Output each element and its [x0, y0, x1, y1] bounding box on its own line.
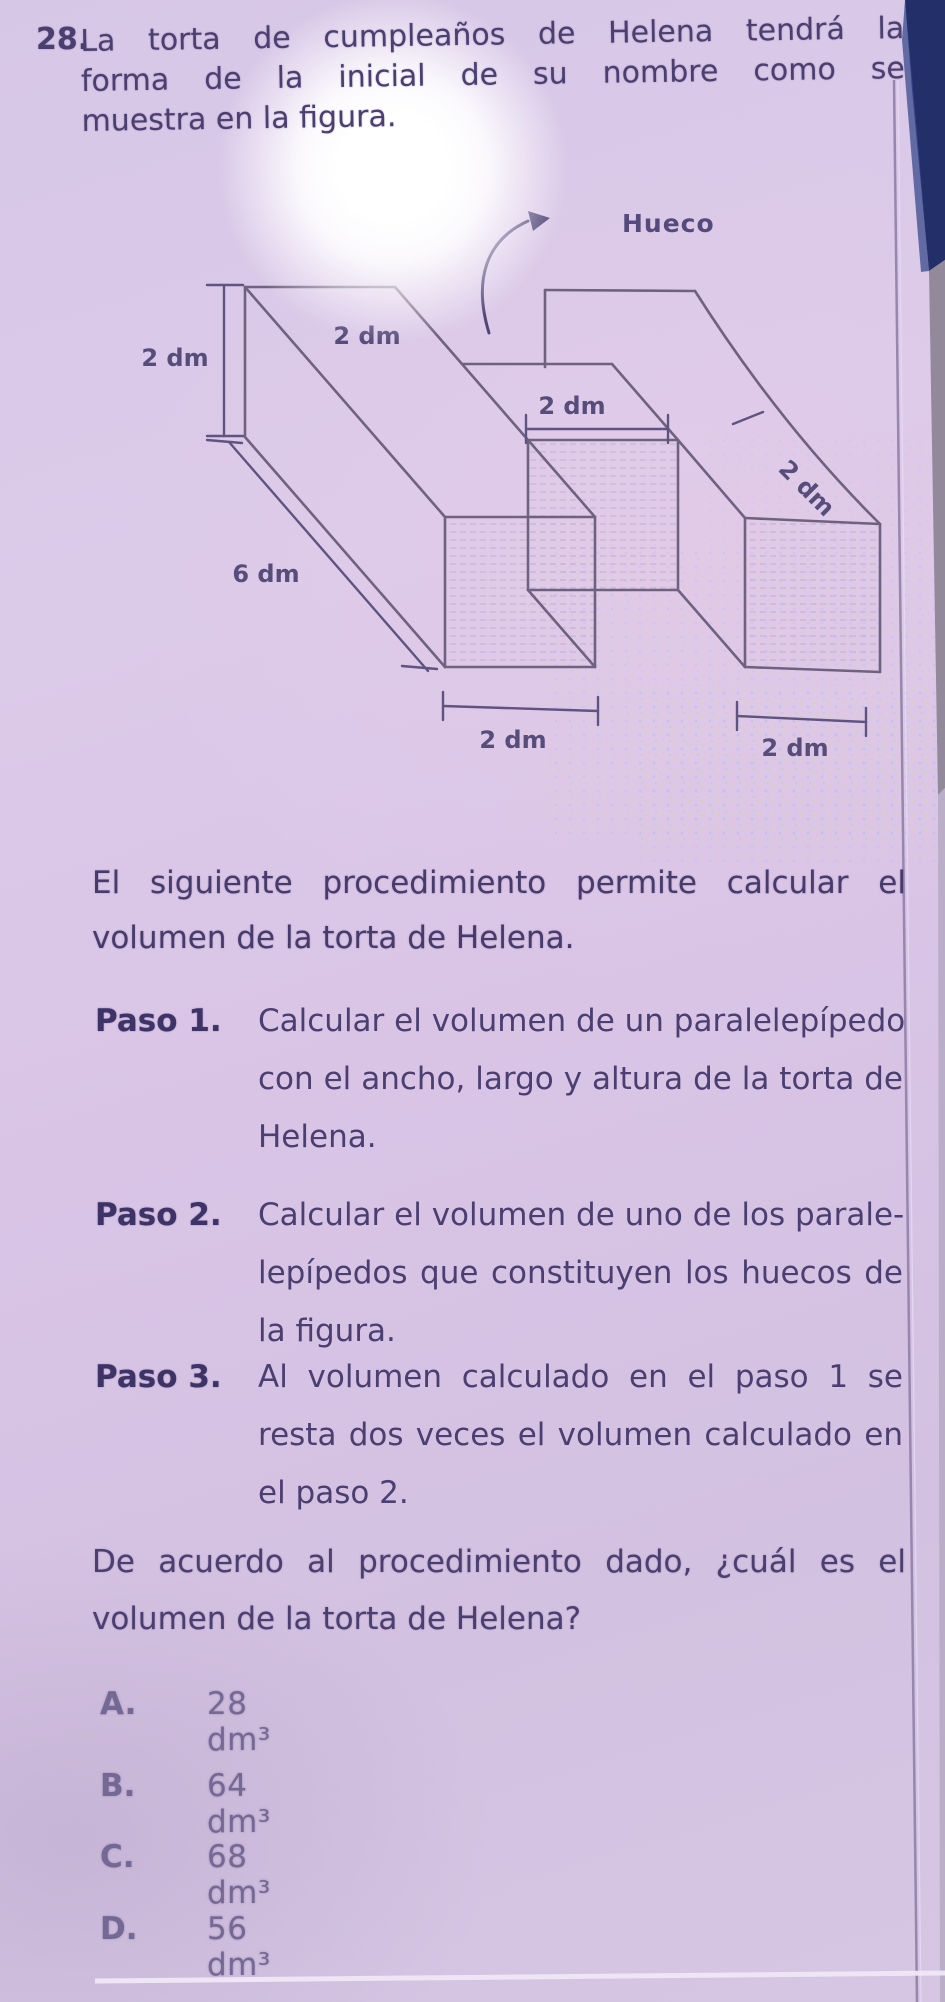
dim-label-bottom-left: 2 dm [479, 726, 546, 754]
photographed-test-page: Hueco 2 dm 2 dm 2 dm 2 dm 6 dm 2 dm 2 dm… [0, 0, 945, 2002]
step-1-line: con el ancho, largo y altura de la torta… [258, 1050, 903, 1108]
intro-line: volumen de la torta de Helena. [92, 911, 906, 966]
hueco-arrow-icon [482, 211, 550, 333]
step-2-label: Paso 2. [95, 1186, 222, 1244]
option-c-value: 68 dm³ [207, 1839, 271, 1911]
procedure-intro: El siguiente procedimiento permite calcu… [92, 856, 906, 966]
dim-label-bottom-right: 2 dm [761, 734, 828, 762]
option-a-letter: A. [100, 1686, 136, 1722]
dim-label-middle-width: 2 dm [538, 392, 605, 420]
step-3-line: Al volumen calculado en el paso 1 se [258, 1348, 903, 1406]
option-b-letter: B. [100, 1768, 135, 1804]
question-statement: La torta de cumpleaños de Helena tendrá … [80, 9, 906, 142]
intro-line: El siguiente procedimiento permite calcu… [92, 856, 906, 911]
halftone-texture [640, 690, 945, 865]
step-1-label: Paso 1. [95, 992, 222, 1050]
final-question-line: De acuerdo al procedimiento dado, ¿cuál … [92, 1534, 906, 1591]
step-1-line: Helena. [258, 1108, 903, 1166]
step-3-line: resta dos veces el volumen calculado en [258, 1406, 903, 1464]
option-b-value: 64 dm³ [207, 1768, 271, 1840]
dim-label-top-depth: 2 dm [333, 322, 400, 350]
dim-label-left-height: 2 dm [141, 344, 208, 372]
dim-label-length: 6 dm [232, 560, 299, 588]
option-d-letter: D. [100, 1911, 138, 1947]
option-c-letter: C. [100, 1839, 135, 1875]
final-question-line: volumen de la torta de Helena? [92, 1591, 906, 1648]
step-2-line: lepípedos que constituyen los huecos de [258, 1244, 903, 1302]
option-d-value: 56 dm³ [207, 1911, 271, 1983]
step-3-line: el paso 2. [258, 1464, 903, 1522]
step-1: Paso 1. Calcular el volumen de un parale… [95, 992, 905, 1166]
step-3-label: Paso 3. [95, 1348, 222, 1406]
step-2: Paso 2. Calcular el volumen de uno de lo… [95, 1186, 905, 1360]
hueco-label: Hueco [622, 209, 715, 238]
step-1-line: Calcular el volumen de un paralelepípedo [258, 992, 903, 1050]
step-3: Paso 3. Al volumen calculado en el paso … [95, 1348, 905, 1522]
option-a-value: 28 dm³ [207, 1686, 271, 1758]
step-2-line: Calcular el volumen de uno de los parale… [258, 1186, 903, 1244]
final-question: De acuerdo al procedimiento dado, ¿cuál … [92, 1534, 906, 1648]
